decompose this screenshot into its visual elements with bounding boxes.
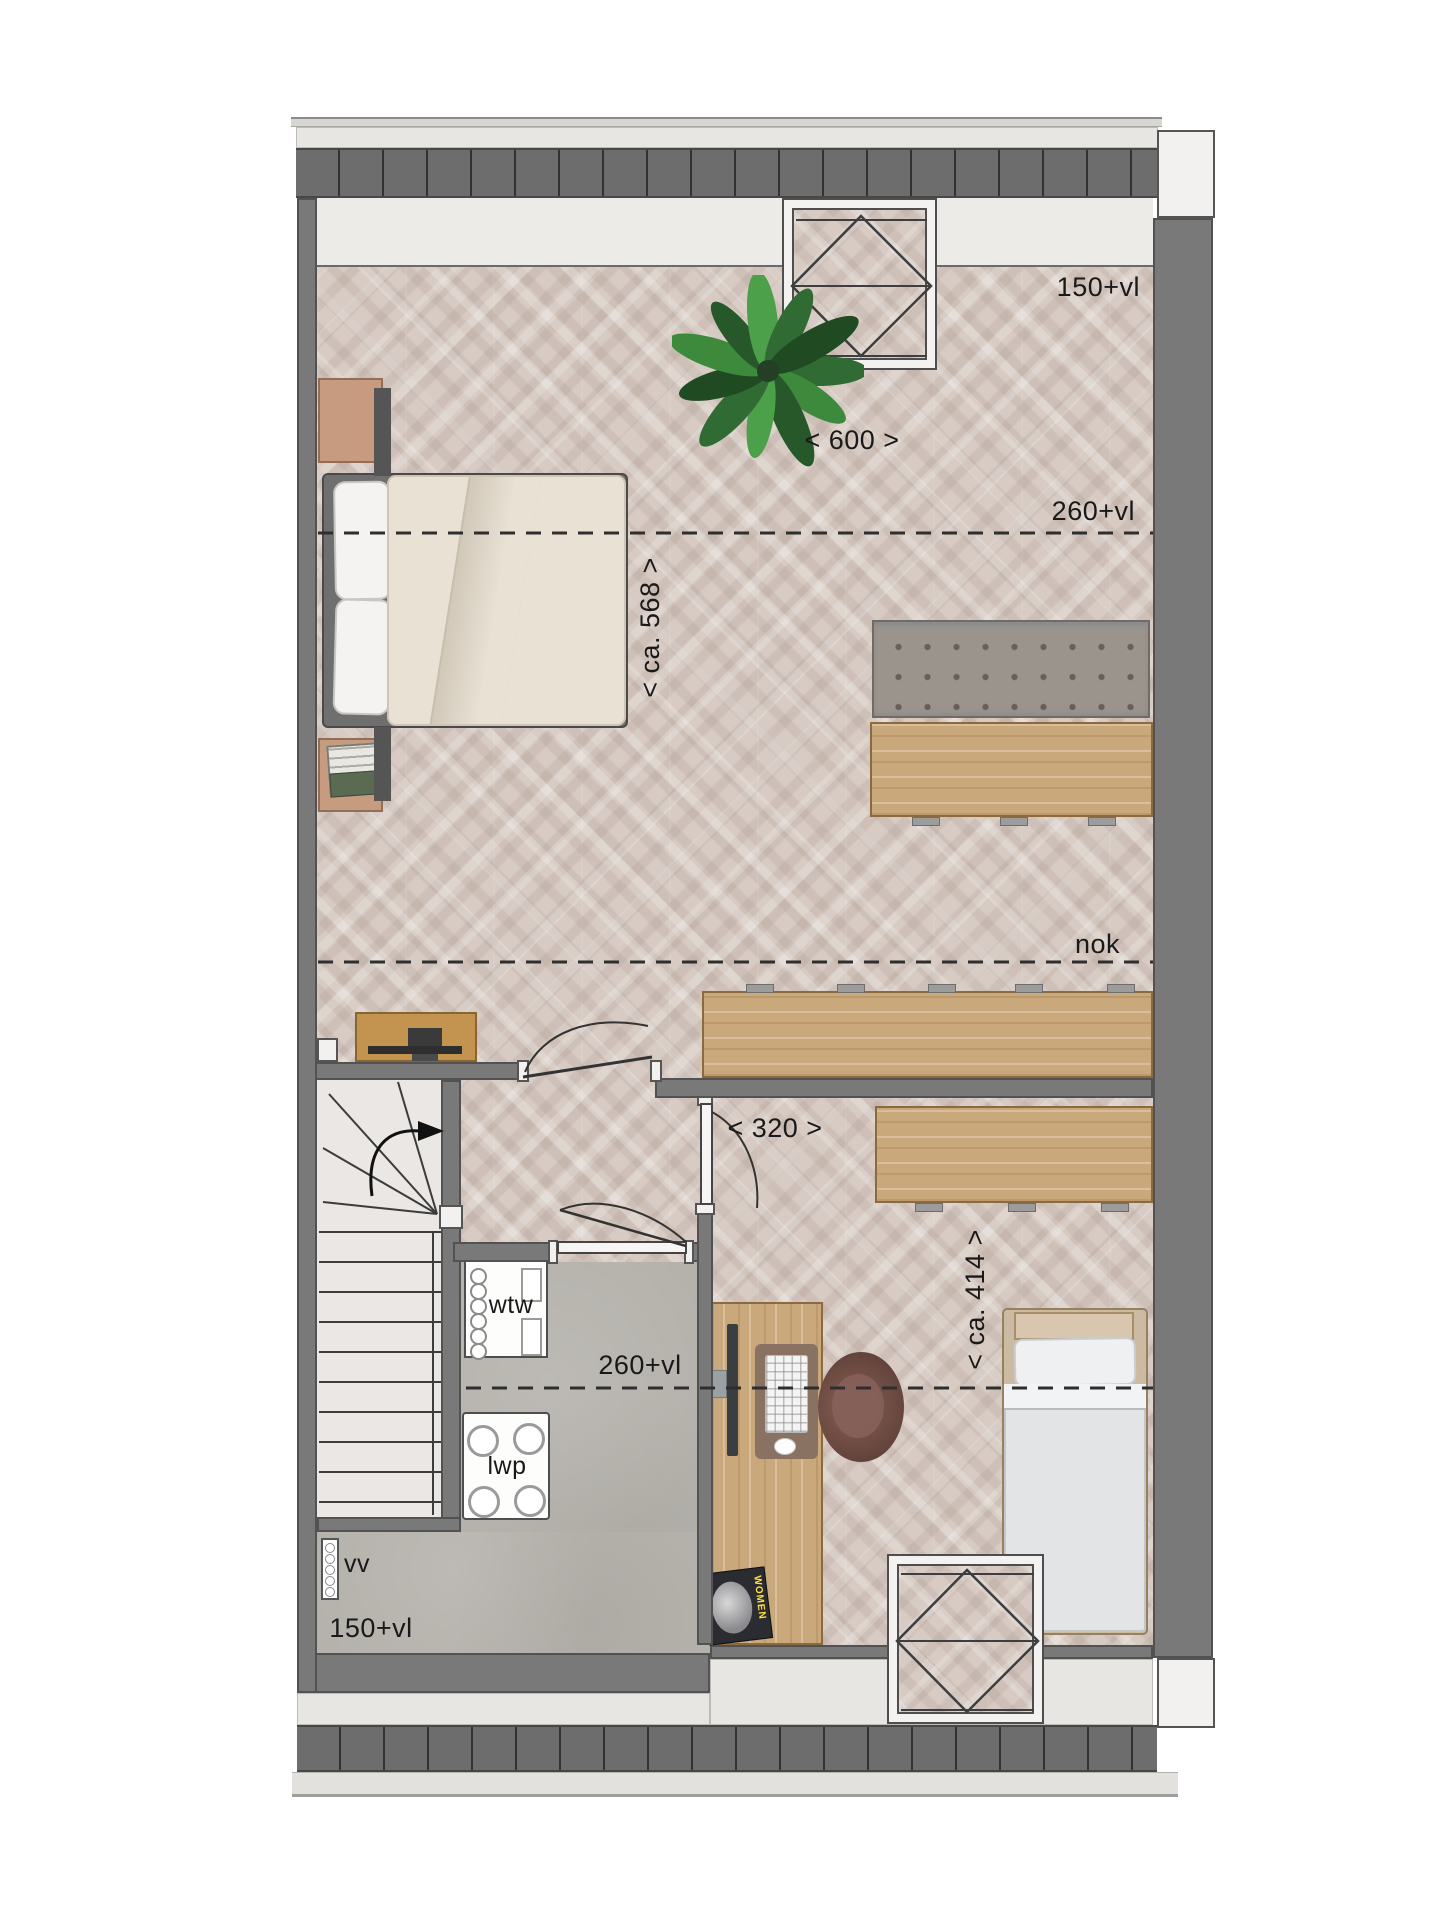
sheet-fold	[1004, 1384, 1146, 1410]
pillow	[332, 598, 392, 715]
magazine-photo	[709, 1579, 755, 1635]
table-bracket	[912, 817, 940, 826]
exterior-wall-left	[297, 198, 317, 1693]
door-jamb	[517, 1060, 529, 1082]
wall-niche	[317, 1038, 338, 1062]
book-cover	[329, 770, 378, 797]
skylight-top	[782, 198, 937, 370]
label-lwp-unit: lwp	[471, 1453, 543, 1481]
pump-ring	[513, 1423, 545, 1455]
chimney-block-bottom-right	[1157, 1658, 1215, 1728]
roof-ridge-edge	[291, 117, 1162, 127]
exterior-wall-bottom-left	[297, 1653, 710, 1693]
stairwell-floor	[317, 1080, 461, 1532]
roof-eave-band-bottom-left	[297, 1693, 710, 1725]
roof-edge-bottom	[292, 1772, 1178, 1797]
skylight-glazing-icon	[889, 1556, 1046, 1726]
desk-room2	[875, 1106, 1153, 1203]
skylight-glazing-icon	[784, 200, 939, 372]
mouse	[774, 1438, 796, 1455]
table-bracket	[1088, 817, 1116, 826]
roof-eave-band-top	[296, 127, 1158, 148]
label-vv-radiator: vv	[344, 1551, 388, 1579]
label-width-600: < 600 >	[782, 426, 922, 456]
technical-room-wall-top-left	[453, 1242, 558, 1262]
label-height-260-mid: 260+vl	[575, 1351, 705, 1381]
desk-bracket	[1015, 984, 1043, 993]
table-bracket	[1000, 817, 1028, 826]
door-jamb	[697, 1096, 713, 1106]
laptop-base	[412, 1054, 438, 1061]
desk-bracket	[1008, 1203, 1036, 1212]
desk-bracket	[837, 984, 865, 993]
door-jamb	[650, 1060, 662, 1082]
roof-panel-band-bottom	[297, 1725, 1157, 1772]
pillow	[333, 481, 392, 601]
desk-bracket	[915, 1203, 943, 1212]
radiator-hole	[325, 1554, 335, 1564]
bench-cushion-tufted	[872, 620, 1150, 718]
desk-bracket	[1101, 1203, 1129, 1212]
label-depth-568: < ca. 568 >	[585, 565, 715, 690]
vent-hole	[470, 1343, 487, 1360]
label-height-150-bottom: 150+vl	[301, 1614, 441, 1644]
skylight-bottom	[887, 1554, 1044, 1724]
monitor-wall-mount	[712, 1370, 727, 1398]
headboard-panel-upper	[374, 388, 391, 476]
exterior-wall-right	[1153, 218, 1213, 1658]
label-width-320: < 320 >	[705, 1114, 845, 1144]
desk-bracket	[928, 984, 956, 993]
label-height-260-top: 260+vl	[1003, 497, 1135, 527]
long-desk	[702, 991, 1153, 1078]
chimney-block-top-right	[1157, 130, 1215, 218]
label-height-150-top: 150+vl	[1000, 273, 1140, 303]
dividing-wall-left-segment	[315, 1062, 527, 1080]
radiator-hole	[325, 1565, 335, 1575]
monitor	[727, 1324, 738, 1456]
radiator-hole	[325, 1587, 335, 1597]
label-ridge-nok: nok	[1020, 930, 1120, 960]
roof-panel-band-top	[296, 148, 1158, 198]
floor-plan-canvas: WOMEN	[0, 0, 1440, 1920]
desk-chair-seat	[832, 1374, 884, 1438]
knee-wall-zone-top	[317, 198, 1153, 267]
door-jamb	[684, 1240, 694, 1264]
radiator-hole	[325, 1576, 335, 1586]
door-jamb	[548, 1240, 558, 1264]
stairwell-wall-right	[441, 1080, 461, 1530]
pump-ring	[468, 1486, 500, 1518]
desk-bracket	[1107, 984, 1135, 993]
door-jamb	[695, 1203, 715, 1215]
bench-table	[870, 722, 1153, 817]
desk-bracket	[746, 984, 774, 993]
wtw-slot	[521, 1318, 542, 1356]
pump-ring	[514, 1485, 546, 1517]
duvet-fold	[428, 475, 541, 726]
magazine-title: WOMEN	[751, 1575, 767, 1620]
radiator-hole	[325, 1543, 335, 1553]
keyboard	[765, 1355, 808, 1433]
stair-newel-post	[439, 1205, 463, 1229]
room2-wall-left	[697, 1213, 713, 1645]
label-depth-414: < ca. 414 >	[910, 1238, 1040, 1360]
headboard-panel-lower	[374, 727, 391, 801]
laptop-screen	[408, 1028, 442, 1046]
dividing-wall-right-segment	[655, 1078, 1153, 1098]
stairwell-wall-bottom	[317, 1517, 461, 1532]
label-wtw-unit: wtw	[475, 1292, 547, 1320]
laptop-keyboard	[368, 1046, 462, 1054]
